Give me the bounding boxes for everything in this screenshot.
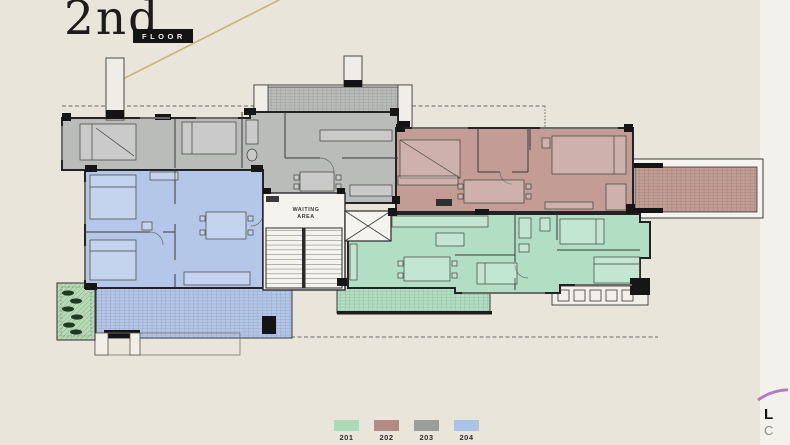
logo-letter-1: L — [764, 406, 773, 423]
floor-plan: WAITING AREA — [0, 0, 790, 445]
legend-item-201: 201 — [334, 420, 359, 442]
legend-item-202: 202 — [374, 420, 399, 442]
legend: 201 202 203 204 — [334, 420, 479, 442]
floor-plan-page: WAITING AREA — [0, 0, 790, 445]
legend-item-203: 203 — [414, 420, 439, 442]
legend-label-204: 204 — [459, 433, 473, 442]
balcony-unit-202 — [631, 159, 763, 218]
waiting-area-label-1: WAITING — [293, 207, 320, 213]
legend-item-204: 204 — [454, 420, 479, 442]
waiting-area-label-2: AREA — [297, 214, 314, 220]
floor-chip: FLOOR — [133, 29, 193, 43]
legend-label-203: 203 — [419, 433, 433, 442]
legend-swatch-202 — [374, 420, 399, 431]
elevator-shaft — [345, 211, 391, 241]
company-logo: L C — [752, 386, 788, 445]
legend-label-201: 201 — [339, 433, 353, 442]
legend-swatch-203 — [414, 420, 439, 431]
staircase — [266, 228, 342, 288]
logo-letter-2: C — [764, 423, 773, 438]
balcony-unit-204 — [95, 284, 292, 355]
legend-label-202: 202 — [379, 433, 393, 442]
legend-swatch-204 — [454, 420, 479, 431]
core-sign — [266, 196, 279, 202]
legend-swatch-201 — [334, 420, 359, 431]
planter-strip — [57, 283, 95, 340]
